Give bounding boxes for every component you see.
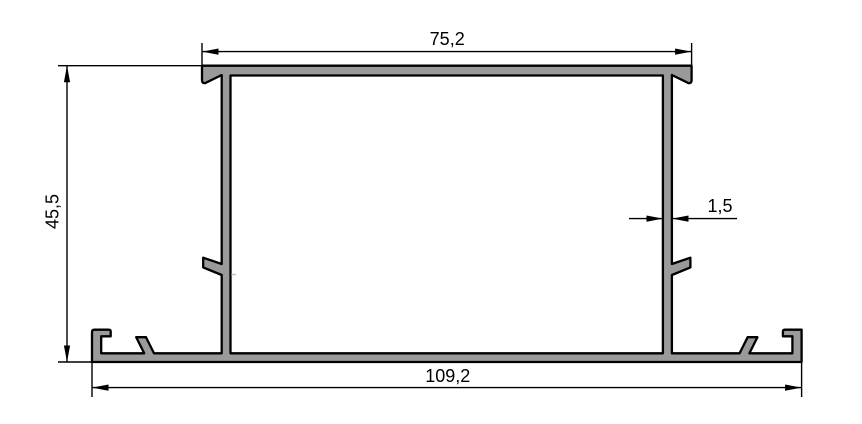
svg-text:75,2: 75,2	[430, 29, 465, 49]
svg-text:1,5: 1,5	[707, 196, 732, 216]
svg-text:109,2: 109,2	[425, 366, 470, 386]
svg-text:45,5: 45,5	[43, 194, 63, 229]
